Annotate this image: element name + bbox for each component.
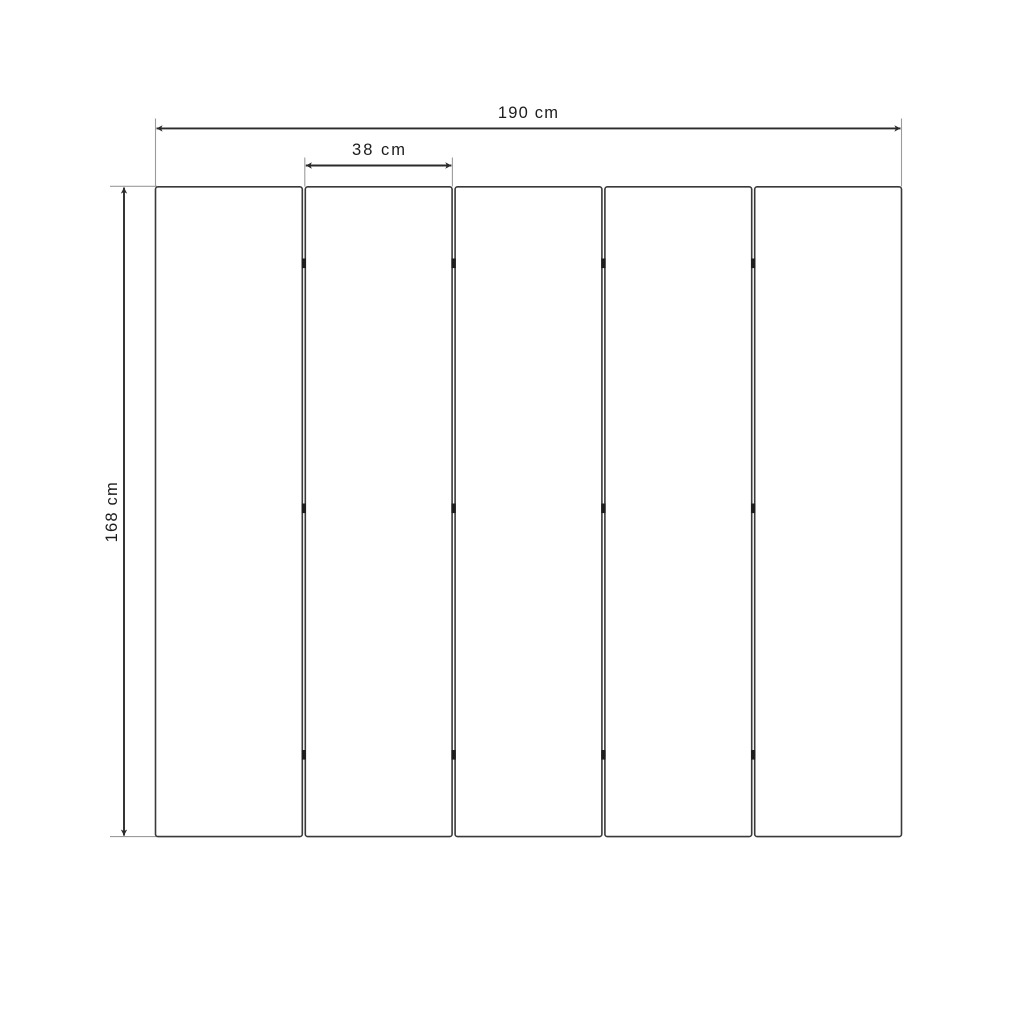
svg-text:168 cm: 168 cm <box>103 481 121 542</box>
svg-text:190 cm: 190 cm <box>498 104 559 122</box>
svg-text:38 cm: 38 cm <box>352 141 407 159</box>
